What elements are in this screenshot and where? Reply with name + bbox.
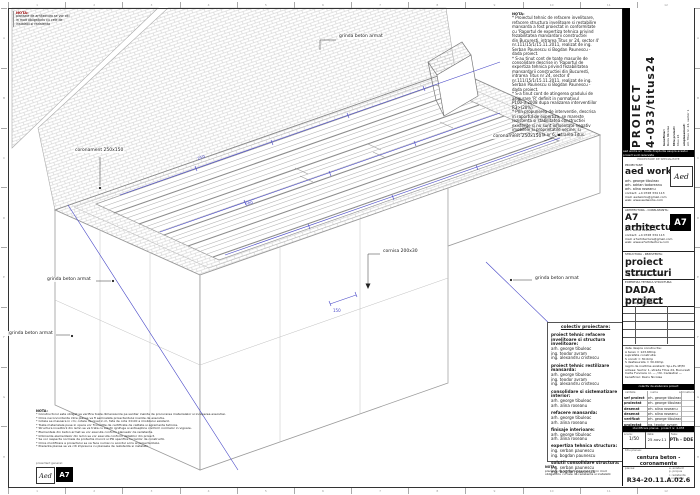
execution-note-line: * Prezenta plansa se va citi impreuna cu… [36, 445, 241, 449]
team-strip-text: colectiv de elaborare proiect [638, 385, 678, 388]
signature-role: sef proiect [623, 396, 647, 400]
ruler-tick: 5 [237, 2, 294, 8]
ruler-tick: 8 [408, 2, 465, 8]
footer-note-line: obligatoriu cu cele de rezistenta si ins… [545, 473, 625, 477]
ruler-tick: 2 [65, 2, 122, 8]
legend-names: arh. george tibuleacing. teodor avraming… [551, 373, 620, 387]
legend-name: ing. alexandru cristescu [551, 382, 620, 387]
structura-label: STRUCTURA - REZISTENTA: [625, 253, 663, 256]
legend-names: arh. george tibuleacarh. alina roseanu [551, 433, 620, 442]
ruler-tick: F [1, 307, 7, 367]
cell-divider [669, 432, 670, 448]
execution-notes-lines: * Constructorul este obligat sa verifice… [36, 413, 241, 449]
corner-note-line: instalatii si rezistenta [16, 23, 100, 27]
ruler-tick: G [695, 367, 700, 427]
legend-role: proiect tehnic refacere invelitoare si s… [551, 333, 620, 347]
amplasament-value: str. Titus nr. 24, sector 1 [687, 12, 691, 146]
sheet-number: R34-20.11.A.02.6 [623, 476, 694, 484]
legend-name: arh. alina roseanu [551, 421, 620, 426]
proiectant-people: arh. george tibuleacarh. adrian todorean… [625, 179, 662, 191]
ruler-tick: H [695, 426, 700, 486]
id-strip-text: identificare plansa · proiect nr. 4-033 [633, 427, 685, 430]
scale-date-phase-row: scara: 1/50 data: 25.nov.11 faza: PTh - … [623, 432, 694, 448]
titlu-plansa-label: titlu plansa: [625, 449, 642, 452]
legend-names: ing. serban paunescuing. bogdan paunescu [551, 449, 620, 458]
ruler-tick: H [1, 426, 7, 486]
project-title-code: 4-033/titus24 [645, 10, 657, 148]
ruler-tick: B [695, 68, 700, 128]
ruler-tick: 10 [523, 2, 580, 8]
revision-row [623, 306, 694, 314]
ruler-tick: 9 [465, 488, 522, 494]
design-team-legend: colectiv proiectare: proiect tehnic refa… [547, 322, 624, 462]
building-data: date despre constructie:A teren = 123.68… [625, 347, 693, 379]
cell-divider [645, 432, 646, 448]
ruler-tick: 2 [65, 488, 122, 494]
ruler-tick: 10 [523, 488, 580, 494]
footer-note: NOTA: plansele de arhitectura se vor cit… [545, 466, 625, 477]
signature-role: desenat [623, 407, 647, 411]
corner-note-lines: plansele de arhitectura se vor citiin mo… [16, 15, 100, 27]
sig-header-calitate: calitate [625, 391, 635, 394]
revision-table [623, 306, 694, 346]
proiectant-contact: contact: +4 0728 334 113mail: aedworks@g… [625, 192, 667, 203]
label-cornisa: cornisa 200x30 [382, 249, 419, 254]
signature-name: arh. alina roseanu [647, 407, 678, 411]
footer-note-lines: plansele de arhitectura se vor citi in m… [545, 470, 625, 477]
person-name: ing. alexandru cristescu [625, 273, 666, 277]
ruler-tick: 6 [294, 2, 351, 8]
aed-logo-text: Aed [674, 172, 689, 181]
scara-value: 1/50 [623, 437, 645, 442]
aed-works-logo: Aed [36, 467, 55, 484]
ruler-tick: B [1, 68, 7, 128]
label-grinda-beton-armat-top: grinda beton armat [338, 34, 384, 39]
signature-name: arh. george tibuleac [647, 396, 681, 400]
ruler-tick: 4 [180, 2, 237, 8]
signature-role: desenat [623, 412, 647, 416]
ruler-tick: 7 [351, 488, 408, 494]
legend-names: arh. george tibuleacarh. alina roseanu [551, 399, 620, 408]
drawing-sheet: { "rulers": { "top": ["1","2","3","4","5… [0, 0, 700, 495]
legend-name: arh. alina roseanu [551, 437, 620, 442]
faza-value: PTh - DDE [669, 437, 694, 442]
ruler-tick: 4 [180, 488, 237, 494]
structura-people: ing. teodor avraming. alexandru cristesc… [625, 269, 666, 277]
rights-strip-text: aed works srl · toate drepturile asupra … [623, 150, 694, 157]
ruler-tick: A [695, 8, 700, 68]
contact-line: web: www.aedworks.com [625, 199, 667, 203]
ruler-tick: A [1, 8, 7, 68]
revision-table-divider [667, 306, 668, 344]
data-label: data: [647, 433, 654, 436]
revision-row [623, 322, 694, 330]
titlu-proiect-label: titlu proiect: [673, 12, 676, 146]
ruler-tick: E [695, 247, 700, 307]
signature-name: arh. alina roseanu [647, 412, 678, 416]
corner-note: NOTA: plansele de arhitectura se vor cit… [13, 11, 100, 27]
signature-name: arh. george tibuleac [647, 401, 681, 405]
rights-strip: aed works srl · toate drepturile asupra … [623, 150, 694, 157]
revision-table-divider [635, 306, 636, 344]
ruler-tick: D [1, 187, 7, 247]
revision-row [623, 330, 694, 338]
label-coronament-right: coronament 250x150 [492, 134, 542, 139]
legend-title: colectiv proiectare: [551, 325, 620, 330]
legend-name: ing. bogdan paunescu [551, 454, 620, 459]
ruler-left: ABCDEFGH [1, 8, 7, 486]
general-note-lines: * Proiectul tehnic de refacere invelitoa… [512, 16, 618, 137]
building-data-line: beneficiar: Raicu Nicolae [625, 376, 693, 380]
title-block: PROIECT 4-033/titus24 beneficiar: Raicu … [622, 8, 694, 486]
title-black-stripe [623, 8, 630, 150]
sig-table-divider [681, 391, 682, 426]
ruler-tick: 11 [580, 488, 637, 494]
ruler-tick: 9 [465, 2, 522, 8]
label-coronament-left: coronament 250x150 [74, 148, 124, 153]
spec-label: PROIECTARE DE SPECIALITATE [623, 158, 694, 161]
legend-names: arh. george tibuleacarh. alina roseanu [551, 416, 620, 425]
ruler-tick: C [695, 128, 700, 188]
beneficiar-value: Raicu Nicolae [667, 12, 671, 146]
ruler-tick: 6 [294, 488, 351, 494]
sig-table-divider [647, 391, 648, 426]
ruler-right: ABCDEFGH [695, 8, 700, 486]
revision-row [623, 314, 694, 322]
arhitectura-contact: contact: +4 0728 334 113mail: a7arhitect… [625, 234, 672, 245]
data-value: 25.nov.11 [645, 437, 669, 442]
execution-notes: NOTA: * Constructorul este obligat sa ve… [36, 409, 241, 449]
contact-line: web: www.a7arhitectura.com [625, 241, 672, 245]
aed-logo-text: Aed [39, 472, 52, 480]
sig-header-nume: nume [650, 391, 658, 394]
legend-names: arh. george tibuleacing. teodor avraming… [551, 347, 620, 361]
signature-role: proiectat [623, 401, 647, 405]
expertiza-label: EXPERTIZA TEHNICA STRUCTURA: [625, 281, 672, 284]
person-name: ing. bogdan paunescu [625, 301, 663, 305]
ruler-tick: D [695, 187, 700, 247]
expertiza-people: ing. serban paunescuing. bogdan paunescu [625, 297, 663, 305]
plansa-label: plansa: [625, 467, 635, 470]
ruler-bottom: 123456789101112 [8, 488, 694, 494]
ruler-tick: 7 [351, 2, 408, 8]
legend-name: ing. alexandru cristescu [551, 356, 620, 361]
general-note: NOTA: * Proiectul tehnic de refacere inv… [512, 12, 618, 137]
titlu-proiect-value: titus 24 [677, 12, 681, 146]
label-grinda-beton-armat-right: grinda beton armat [534, 276, 580, 281]
a7-logo-box: A7 [670, 214, 691, 231]
ruler-tick: C [1, 128, 7, 188]
ruler-tick: G [1, 367, 7, 427]
legend-name: arh. alina roseanu [551, 404, 620, 409]
ruler-tick: 12 [637, 488, 694, 494]
project-title-word: PROIECT [631, 10, 643, 148]
ruler-tick: E [1, 247, 7, 307]
a7-logo-text: A7 [59, 471, 69, 479]
person-name: arh. alina roseanu [625, 228, 659, 232]
ruler-top: 123456789101112 [8, 2, 694, 8]
aed-works-logo-box: Aed [670, 166, 693, 187]
logos-caption: proiectant general: [36, 462, 63, 465]
ruler-tick: F [695, 307, 700, 367]
signature-role: verificat [623, 417, 647, 421]
ruler-tick: 1 [8, 488, 65, 494]
a7-logo-text: A7 [674, 218, 687, 228]
arhitectura-label: ARHITECTURA - CONSULTANTA: [625, 209, 669, 212]
ruler-tick: 3 [122, 2, 179, 8]
ruler-tick: 5 [237, 488, 294, 494]
ruler-tick: 1 [8, 2, 65, 8]
signature-name: arh. george tibuleac [647, 417, 681, 421]
label-grinda-beton-armat-far-left: grinda beton armat [8, 331, 54, 336]
arhitectura-people: arh. george tibuleacarh. alina roseanu [625, 224, 659, 232]
ruler-tick: 3 [122, 488, 179, 494]
scara-label: scara: [624, 433, 633, 436]
ruler-tick: 8 [408, 488, 465, 494]
label-grinda-beton-armat-left: grinda beton armat [46, 277, 92, 282]
faza-label: faza: [671, 433, 678, 436]
a7-logo: A7 [56, 467, 73, 482]
